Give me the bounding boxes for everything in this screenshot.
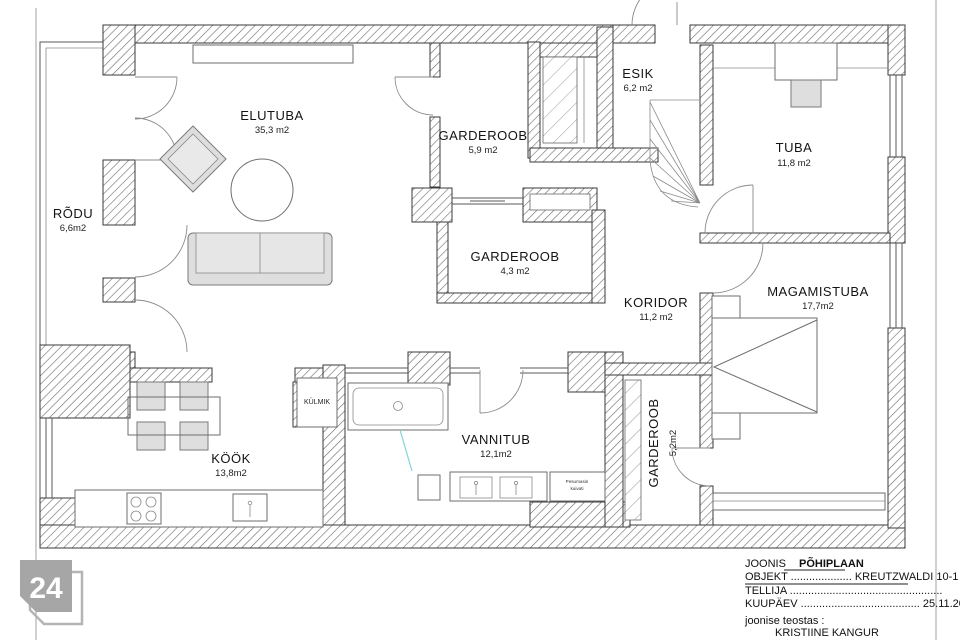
svg-text:6,2 m2: 6,2 m2	[623, 83, 652, 94]
balcony-door-arc	[135, 225, 187, 277]
svg-text:kuivati: kuivati	[570, 486, 583, 491]
washing-machine: Pesumasin kuivati	[550, 472, 605, 501]
room-label-vannitub: VANNITUB	[462, 432, 531, 447]
room-label-garderoob-52: GARDEROOB	[646, 398, 661, 487]
floor-plan-drawing: Pesumasin kuivati ELUTUBA 35,3 m2 RÕDU 6…	[0, 0, 960, 640]
room-label-koridor: KORIDOR	[624, 295, 688, 310]
title-block: JOONIS PÕHIPLAAN OBJEKT ................…	[744, 557, 960, 640]
room-label-garderoob-59: GARDEROOB	[438, 128, 527, 143]
coffee-table	[231, 159, 293, 221]
svg-text:6,6m2: 6,6m2	[60, 223, 86, 234]
room-label-rodu: RÕDU	[53, 206, 93, 221]
credit-name: KRISTIINE KANGUR	[775, 627, 879, 639]
tuba-furniture	[713, 43, 888, 107]
room-label-garderoob-43: GARDEROOB	[470, 249, 559, 264]
shower-glass-line	[400, 430, 412, 471]
svg-text:24: 24	[29, 572, 63, 605]
desk	[775, 43, 837, 80]
tv-bench	[193, 45, 353, 63]
room-label-kook: KÖÖK	[211, 451, 251, 466]
room-labels: ELUTUBA 35,3 m2 RÕDU 6,6m2 GARDEROOB 5,9…	[53, 66, 869, 488]
desk-chair	[791, 80, 821, 107]
room-label-tuba: TUBA	[776, 140, 813, 155]
watermark-24-logo: 24	[20, 560, 82, 624]
kitchen-window	[40, 418, 52, 498]
svg-text:5,9 m2: 5,9 m2	[468, 145, 497, 156]
kitchen-counter	[75, 490, 323, 527]
sliding-door	[452, 198, 523, 204]
svg-text:5,2m2: 5,2m2	[668, 430, 679, 456]
svg-text:17,7m2: 17,7m2	[802, 301, 834, 312]
room-label-elutuba: ELUTUBA	[240, 108, 303, 123]
toilet	[418, 475, 440, 500]
closet-mirror-panel	[625, 380, 641, 520]
hallway-mirror-wardrobe	[543, 57, 577, 143]
bathroom-partition	[345, 368, 568, 373]
living-room-furniture	[160, 45, 353, 285]
garderoob-door-arc	[395, 77, 433, 115]
floor-plan-sheet: Pesumasin kuivati ELUTUBA 35,3 m2 RÕDU 6…	[0, 0, 960, 640]
balcony-door-arc2	[135, 300, 187, 352]
fridge-label: KÜLMIK	[304, 398, 330, 406]
bathtub	[348, 383, 448, 430]
dining-chair	[137, 382, 165, 410]
tuba-window	[890, 75, 902, 157]
stove-icon	[127, 493, 161, 524]
dining-chair	[137, 422, 165, 450]
svg-text:Pesumasin: Pesumasin	[566, 479, 589, 484]
bathroom-door-arc	[480, 370, 523, 413]
bed	[712, 318, 817, 413]
balcony-outline	[40, 42, 105, 345]
bedroom-bench	[713, 493, 885, 510]
objekt-row: OBJEKT .................... KREUTZWALDI …	[745, 571, 958, 583]
nightstand	[712, 296, 740, 318]
svg-text:4,3 m2: 4,3 m2	[500, 266, 529, 277]
joonis-row: JOONIS PÕHIPLAAN	[745, 557, 864, 570]
bedroom-furniture	[712, 296, 885, 510]
kuupaev-row: KUUPÄEV ................................…	[745, 598, 960, 610]
entry-door-arc	[632, 0, 677, 25]
room-label-magamistuba: MAGAMISTUBA	[767, 284, 869, 299]
sofa	[188, 233, 332, 285]
dining-chair	[180, 382, 208, 410]
washbasin-counter	[450, 472, 547, 501]
tellija-row: TELLIJA ................................…	[745, 585, 942, 597]
dining-chair	[180, 422, 208, 450]
balcony-double-door	[135, 77, 177, 160]
nightstand	[712, 413, 740, 439]
svg-text:11,2 m2: 11,2 m2	[639, 312, 673, 323]
svg-text:35,3 m2: 35,3 m2	[255, 125, 289, 136]
kitchen-sink-icon	[233, 494, 267, 521]
tuba-door-arc	[705, 185, 753, 233]
svg-text:13,8m2: 13,8m2	[215, 468, 247, 479]
room-label-esik: ESIK	[622, 66, 654, 81]
svg-text:12,1m2: 12,1m2	[480, 449, 512, 460]
credit-intro: joonise teostas :	[744, 615, 825, 627]
svg-text:11,8 m2: 11,8 m2	[777, 158, 811, 169]
bedroom-door-arc	[713, 243, 763, 293]
bedroom-window	[890, 243, 902, 328]
